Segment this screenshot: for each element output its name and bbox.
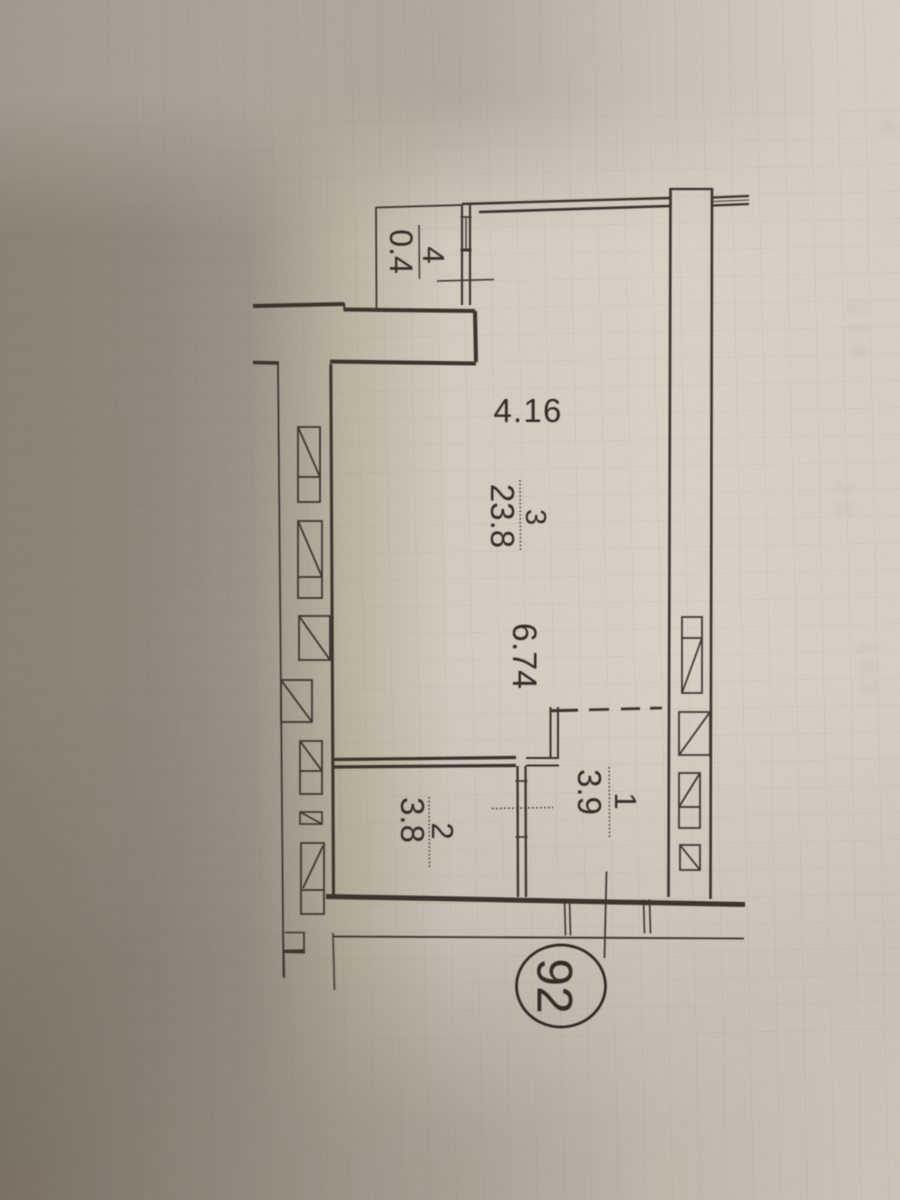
svg-text:23.8: 23.8 [484,484,521,548]
svg-text:4: 4 [416,246,451,263]
svg-text:3: 3 [519,509,551,525]
svg-text:4.16: 4.16 [493,392,562,429]
svg-text:1 6 3: 1 6 3 [854,640,881,693]
svg-text:4: 4 [874,120,900,133]
svg-text:6.74: 6.74 [505,623,543,689]
svg-text:1: 1 [608,792,643,809]
svg-text:3 1 4: 3 1 4 [844,300,874,358]
svg-text:3.9: 3.9 [571,769,608,815]
svg-text:2: 2 [425,822,460,839]
svg-text:92: 92 [527,958,583,1014]
svg-text:0.4: 0.4 [383,229,419,273]
svg-text:2 8: 2 8 [829,480,859,516]
